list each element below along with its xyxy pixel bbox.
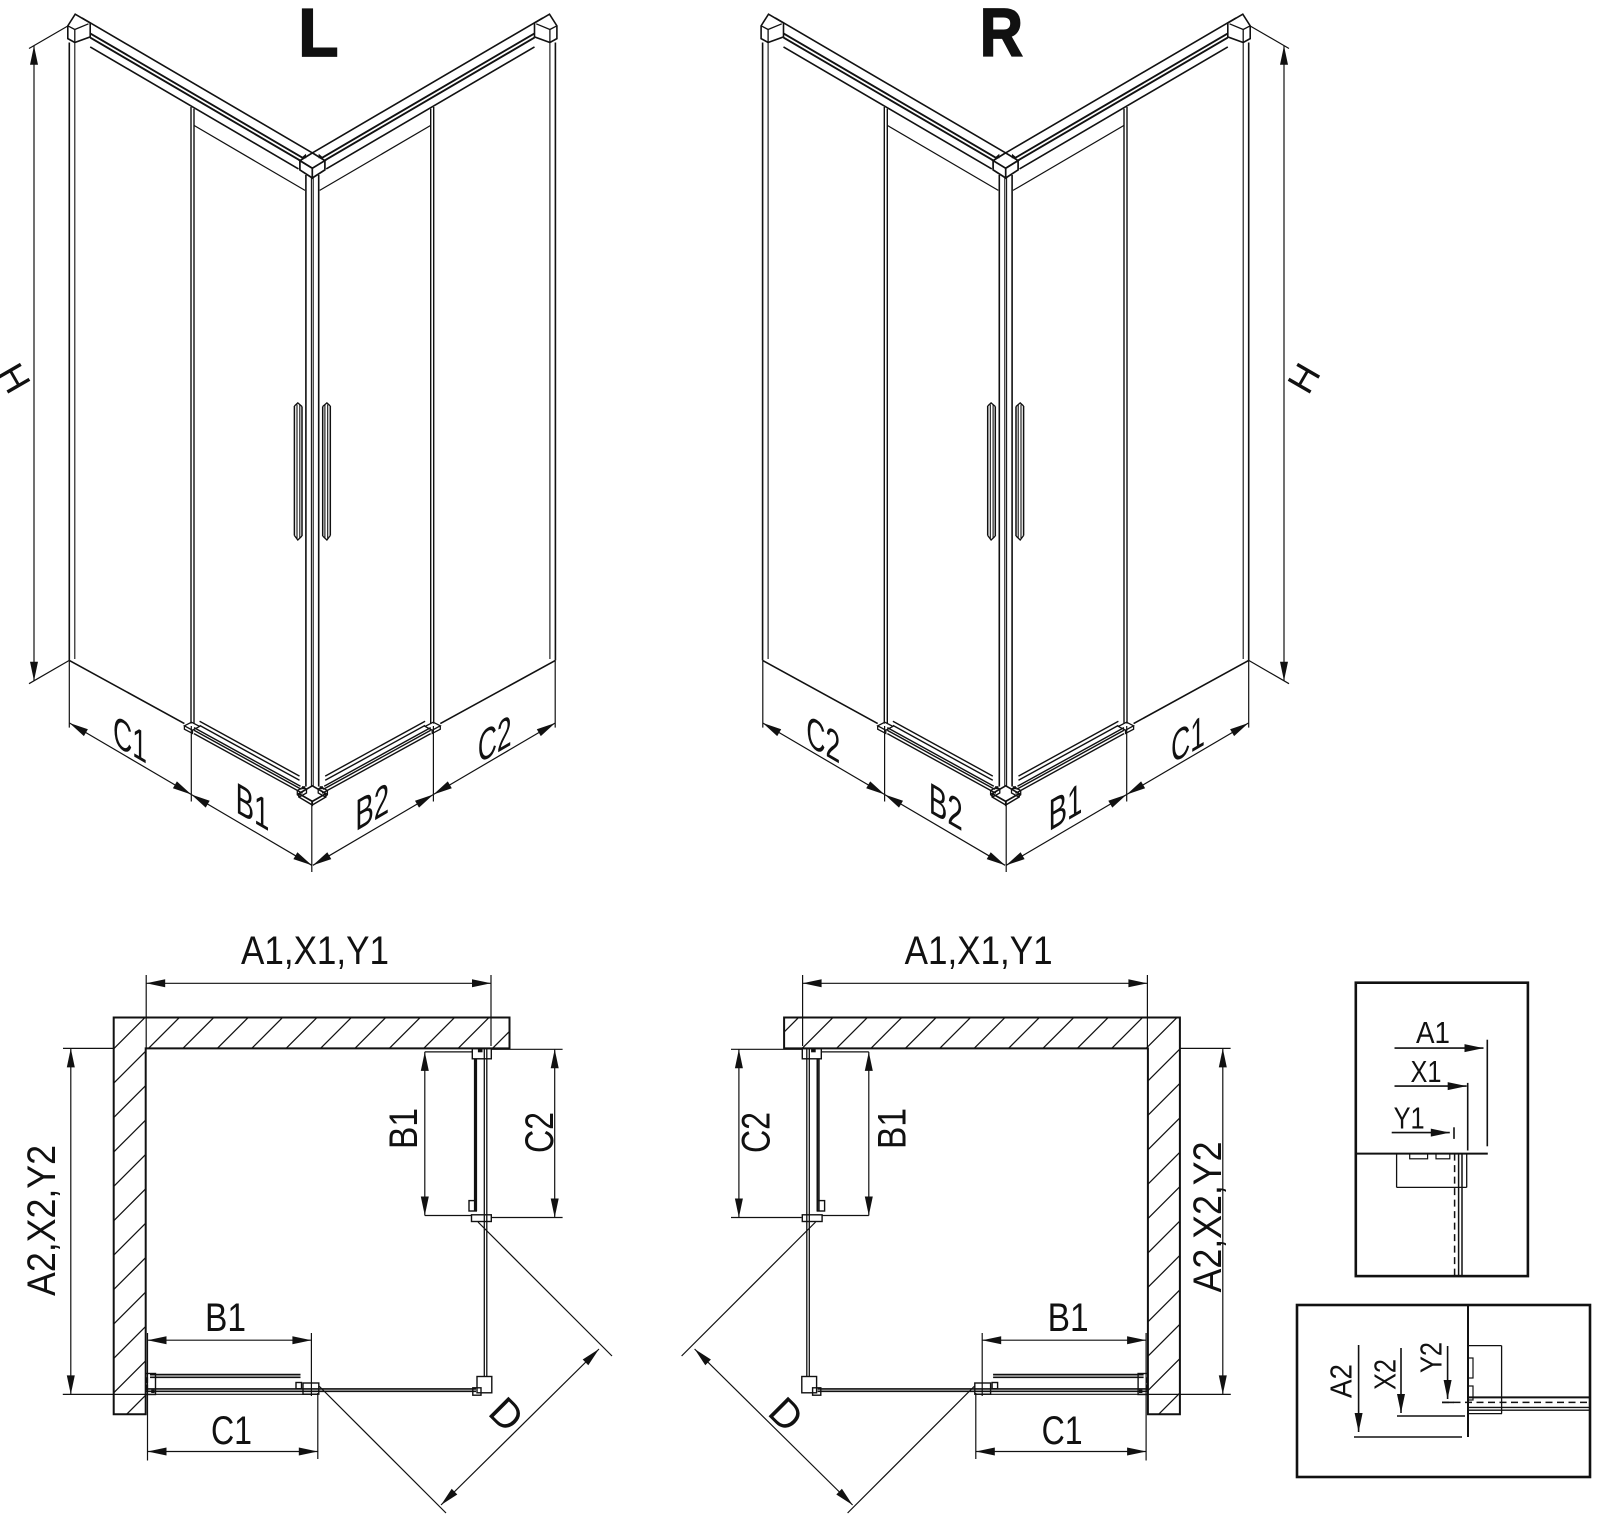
svg-text:Y1: Y1 — [1394, 1100, 1425, 1135]
svg-text:C1: C1 — [211, 1409, 252, 1453]
svg-text:A1: A1 — [1416, 1015, 1450, 1050]
svg-text:A2,X2,Y2: A2,X2,Y2 — [20, 1145, 64, 1296]
svg-text:A2: A2 — [1324, 1364, 1359, 1398]
svg-text:A1,X1,Y1: A1,X1,Y1 — [905, 929, 1053, 973]
svg-text:X2: X2 — [1368, 1359, 1403, 1390]
svg-text:B1: B1 — [205, 1296, 246, 1340]
svg-text:L: L — [298, 0, 338, 71]
svg-text:C1: C1 — [1042, 1409, 1083, 1453]
svg-text:B1: B1 — [1048, 1296, 1089, 1340]
svg-text:A1,X1,Y1: A1,X1,Y1 — [241, 929, 389, 973]
svg-text:B1: B1 — [870, 1108, 914, 1149]
svg-text:B1: B1 — [382, 1108, 426, 1149]
svg-text:C2: C2 — [734, 1112, 778, 1153]
svg-text:A2,X2,Y2: A2,X2,Y2 — [1186, 1142, 1230, 1293]
svg-text:Y2: Y2 — [1414, 1342, 1449, 1373]
svg-text:R: R — [980, 0, 1023, 70]
svg-text:X1: X1 — [1411, 1054, 1442, 1089]
svg-text:C2: C2 — [518, 1112, 562, 1153]
